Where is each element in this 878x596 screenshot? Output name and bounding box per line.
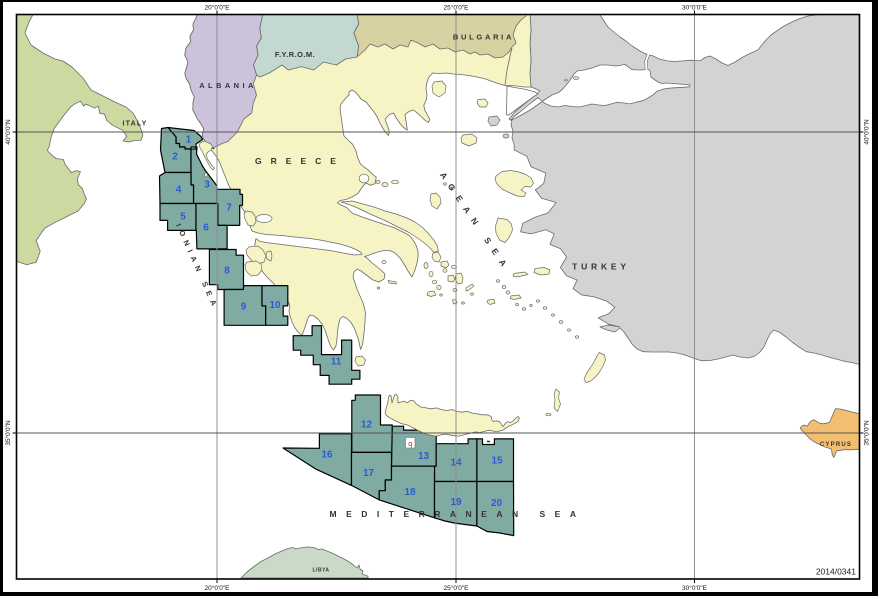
svg-text:BULGARIA: BULGARIA	[453, 33, 514, 42]
svg-text:11: 11	[331, 357, 342, 368]
svg-text:35°0'0"N: 35°0'0"N	[863, 420, 871, 446]
svg-text:30°0'0"E: 30°0'0"E	[682, 584, 708, 592]
svg-text:30°0'0"E: 30°0'0"E	[682, 4, 708, 12]
svg-text:7: 7	[226, 203, 232, 214]
svg-text:8: 8	[224, 266, 230, 277]
svg-text:q: q	[408, 441, 412, 448]
svg-text:20: 20	[491, 498, 503, 509]
svg-text:15: 15	[491, 456, 503, 467]
svg-text:19: 19	[450, 497, 462, 508]
svg-text:40°0'0"N: 40°0'0"N	[863, 119, 871, 145]
svg-text:GREECE: GREECE	[255, 156, 345, 166]
svg-text:MEDITERRANEAN SEA: MEDITERRANEAN SEA	[330, 509, 586, 519]
svg-text:40°0'0"N: 40°0'0"N	[4, 119, 12, 145]
svg-text:25°0'0"E: 25°0'0"E	[444, 4, 470, 12]
svg-text:13: 13	[418, 451, 430, 462]
svg-text:2014/0341: 2014/0341	[816, 567, 856, 577]
svg-text:17: 17	[363, 468, 375, 479]
svg-text:20°0'0"E: 20°0'0"E	[205, 584, 231, 592]
svg-text:12: 12	[361, 420, 373, 431]
svg-text:3: 3	[204, 180, 210, 191]
svg-text:35°0'0"N: 35°0'0"N	[4, 420, 12, 446]
svg-text:6: 6	[203, 223, 209, 234]
svg-text:4: 4	[176, 185, 182, 196]
svg-text:10: 10	[269, 300, 281, 311]
svg-text:20°0'0"E: 20°0'0"E	[205, 4, 231, 12]
svg-text:F.Y.R.O.M.: F.Y.R.O.M.	[275, 50, 315, 59]
svg-text:18: 18	[404, 487, 416, 498]
svg-text:5: 5	[180, 212, 186, 223]
svg-text:9: 9	[241, 302, 247, 313]
svg-text:1: 1	[186, 135, 192, 146]
svg-text:TURKEY: TURKEY	[572, 262, 630, 272]
svg-text:CYPRUS: CYPRUS	[820, 442, 852, 448]
svg-text:ALBANIA: ALBANIA	[199, 81, 257, 90]
svg-text:16: 16	[321, 450, 333, 461]
svg-text:ITALY: ITALY	[122, 121, 147, 128]
svg-text:25°0'0"E: 25°0'0"E	[444, 584, 470, 592]
svg-text:LIBYA: LIBYA	[312, 568, 329, 574]
svg-text:14: 14	[450, 458, 462, 469]
svg-text:2: 2	[172, 152, 178, 163]
